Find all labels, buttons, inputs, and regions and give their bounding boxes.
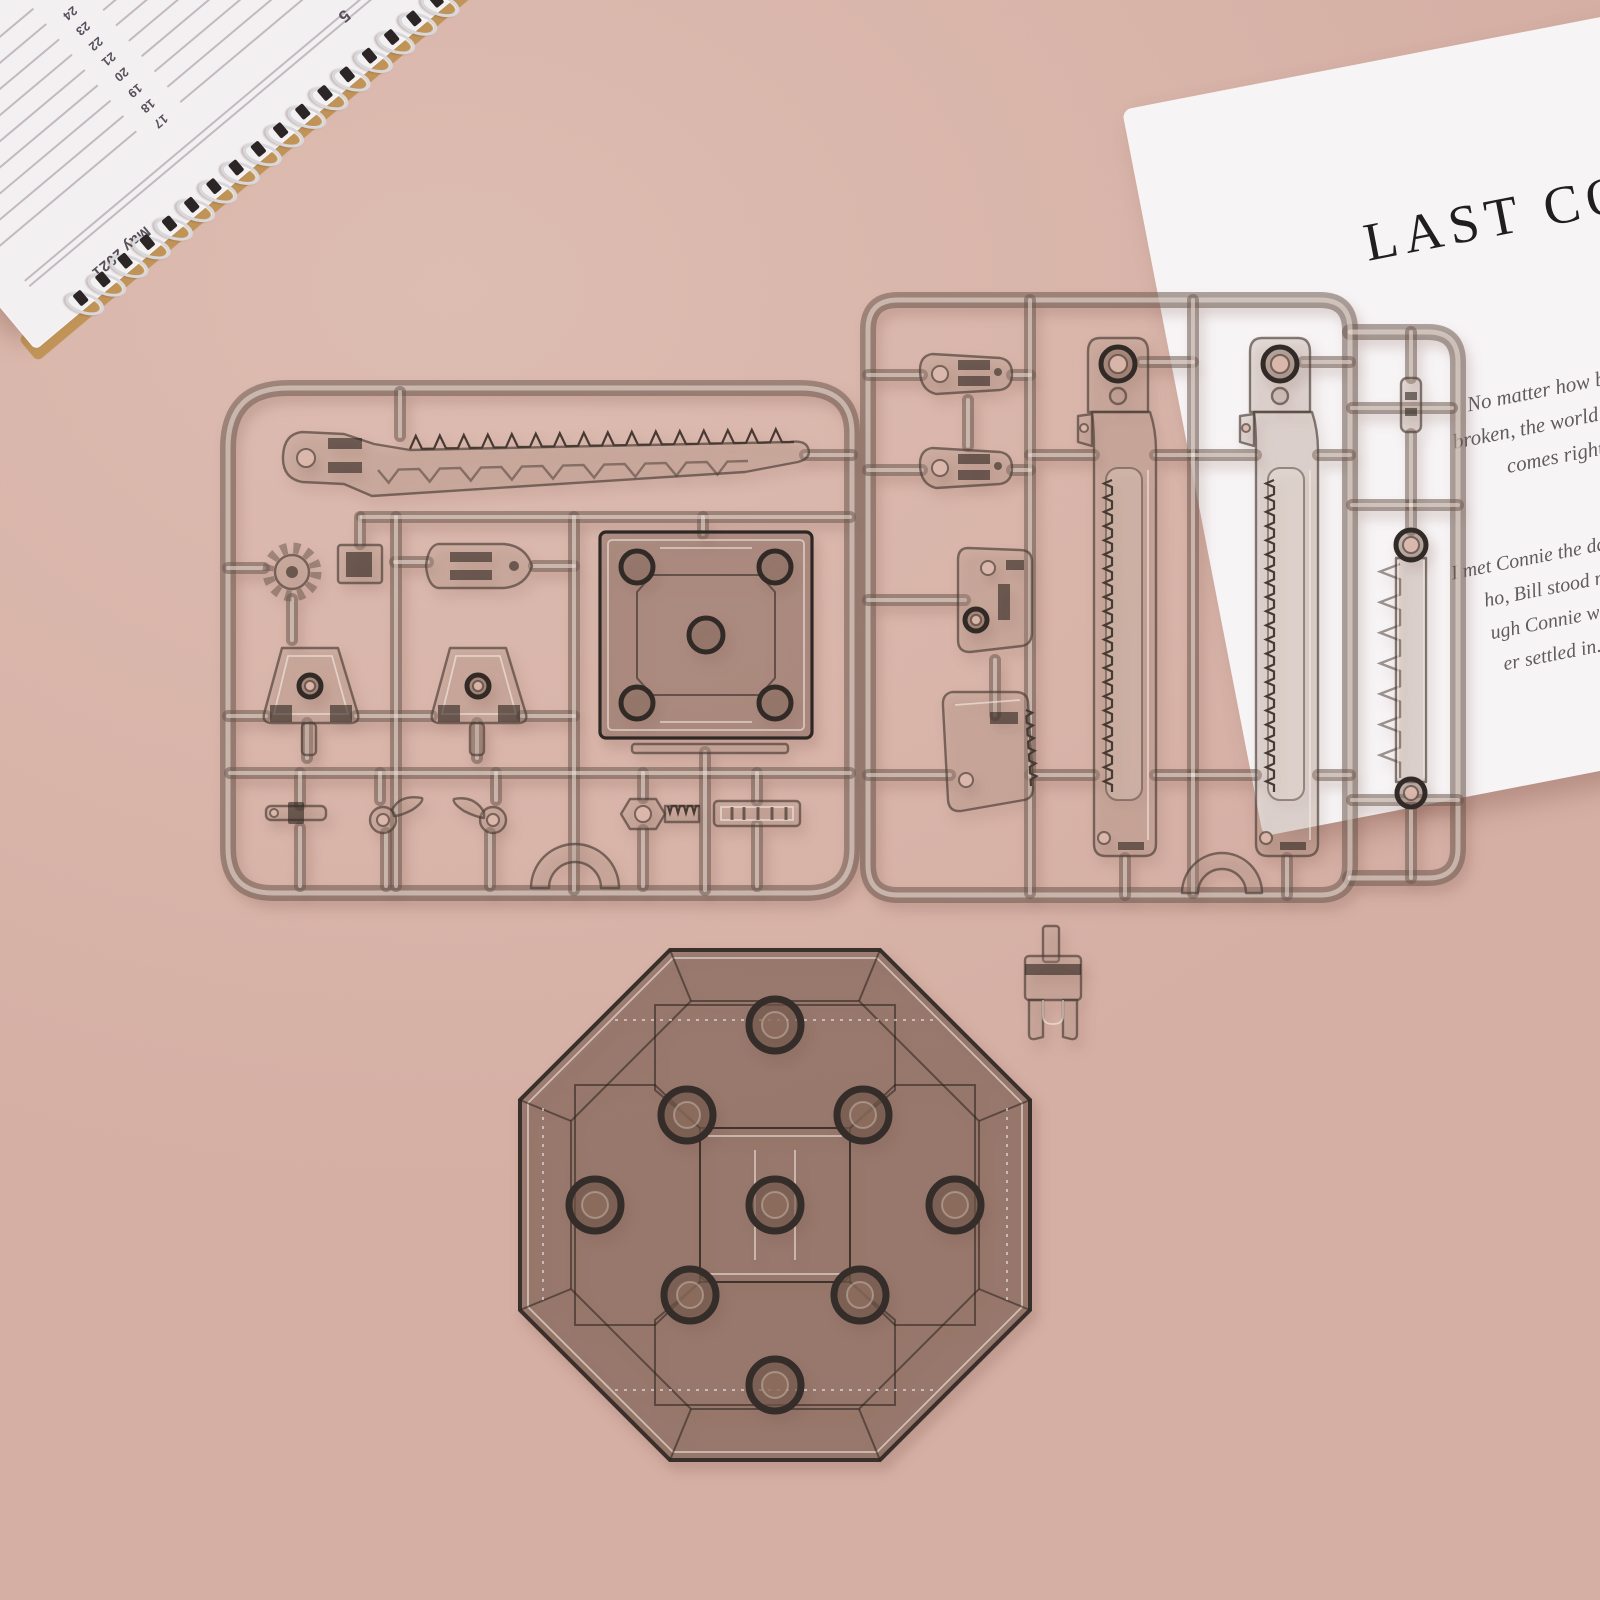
embossed-plate-part [714,801,800,826]
base-plate-part [600,532,812,753]
sprue-runner-a [228,388,852,893]
bracket-part [920,448,1012,488]
truss-column-part [1380,530,1426,807]
hex-coupler-part [621,799,700,829]
support-clip-part [1025,926,1081,1039]
photo-scene: May 2021 5 17 18 19 20 21 22 23 24 LAST … [0,0,1600,1600]
plastic-parts-layer [0,0,1600,1600]
stand-trapezoid-part [432,648,527,755]
saw-arm-part [283,429,809,496]
octagonal-display-base [520,950,1030,1460]
bracket-box-part [958,548,1032,652]
bracket-serrated-part [943,692,1036,811]
clamp-part [426,544,532,588]
square-adapter-part [338,545,382,583]
pin-connector-part [1401,378,1421,432]
sprue-runner-b [868,300,1458,895]
stand-trapezoid-part [264,648,359,755]
bracket-part [920,354,1012,394]
small-connector-part [266,802,326,824]
gear-part [268,548,316,596]
